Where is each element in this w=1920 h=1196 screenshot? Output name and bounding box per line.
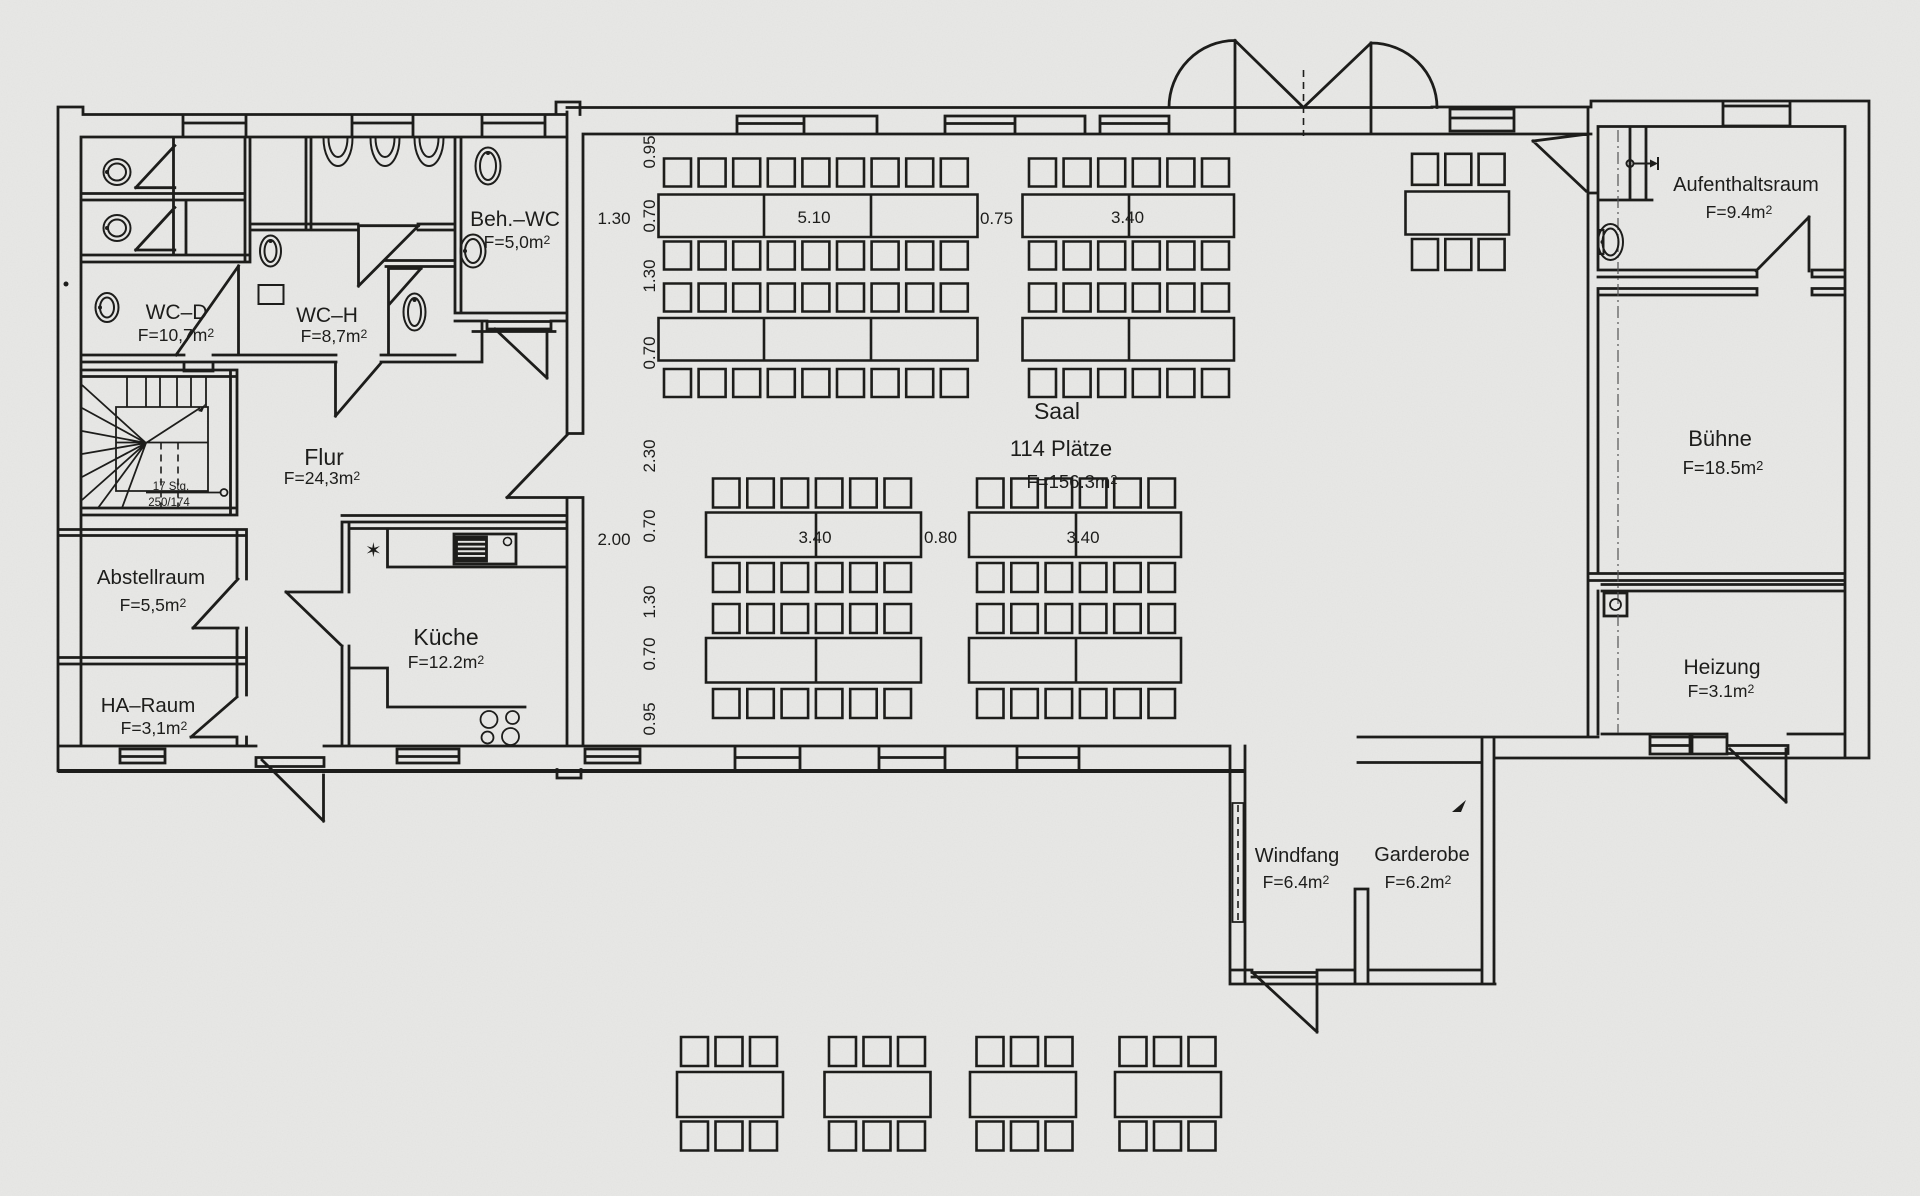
svg-text:F=24,3m2: F=24,3m2 <box>284 468 361 488</box>
svg-text:Heizung: Heizung <box>1683 656 1760 679</box>
svg-text:Flur: Flur <box>304 444 344 470</box>
svg-text:0.95: 0.95 <box>640 135 659 168</box>
svg-text:250/174: 250/174 <box>148 497 190 509</box>
svg-text:F=6.4m2: F=6.4m2 <box>1263 872 1330 892</box>
svg-text:Saal: Saal <box>1034 398 1080 424</box>
svg-text:3.40: 3.40 <box>798 528 831 547</box>
svg-text:0.75: 0.75 <box>980 209 1013 228</box>
svg-text:F=10,7m2: F=10,7m2 <box>138 325 215 345</box>
svg-text:3.40: 3.40 <box>1111 208 1144 227</box>
svg-text:Küche: Küche <box>413 624 478 650</box>
svg-text:1.30: 1.30 <box>597 209 630 228</box>
svg-text:114 Plätze: 114 Plätze <box>1010 436 1112 461</box>
svg-text:WC–H: WC–H <box>296 304 358 327</box>
svg-text:1.30: 1.30 <box>640 259 659 292</box>
svg-text:HA–Raum: HA–Raum <box>101 694 196 717</box>
svg-text:✶: ✶ <box>365 540 382 562</box>
svg-text:Bühne: Bühne <box>1688 426 1752 451</box>
svg-text:0.70: 0.70 <box>640 637 659 670</box>
svg-text:2.00: 2.00 <box>597 530 630 549</box>
svg-text:0.70: 0.70 <box>640 336 659 369</box>
svg-text:F=18.5m2: F=18.5m2 <box>1683 457 1764 478</box>
svg-text:F=6.2m2: F=6.2m2 <box>1385 872 1452 892</box>
svg-text:Windfang: Windfang <box>1255 845 1340 867</box>
svg-text:F=8,7m2: F=8,7m2 <box>301 326 368 346</box>
svg-text:F=9.4m2: F=9.4m2 <box>1706 202 1773 222</box>
svg-text:17 Stg.: 17 Stg. <box>153 481 189 493</box>
svg-text:0.70: 0.70 <box>640 199 659 232</box>
svg-text:Abstellraum: Abstellraum <box>97 566 205 589</box>
svg-text:0.70: 0.70 <box>640 509 659 542</box>
svg-text:0.95: 0.95 <box>640 702 659 735</box>
svg-text:F=3.1m2: F=3.1m2 <box>1688 681 1755 701</box>
svg-text:1.30: 1.30 <box>640 585 659 618</box>
svg-text:WC–D: WC–D <box>146 301 208 324</box>
svg-text:Beh.–WC: Beh.–WC <box>470 208 560 231</box>
svg-text:F=5,5m2: F=5,5m2 <box>120 595 187 615</box>
svg-text:F=156.3m2: F=156.3m2 <box>1026 471 1117 492</box>
svg-text:F=3,1m2: F=3,1m2 <box>121 718 188 738</box>
svg-text:F=5,0m2: F=5,0m2 <box>484 232 551 252</box>
svg-text:5.10: 5.10 <box>797 208 830 227</box>
svg-text:0.80: 0.80 <box>924 528 957 547</box>
svg-text:3.40: 3.40 <box>1066 528 1099 547</box>
svg-text:2.30: 2.30 <box>640 439 659 472</box>
svg-text:Garderobe: Garderobe <box>1374 844 1470 866</box>
svg-text:F=12.2m2: F=12.2m2 <box>408 652 485 672</box>
svg-text:Aufenthaltsraum: Aufenthaltsraum <box>1673 174 1819 196</box>
